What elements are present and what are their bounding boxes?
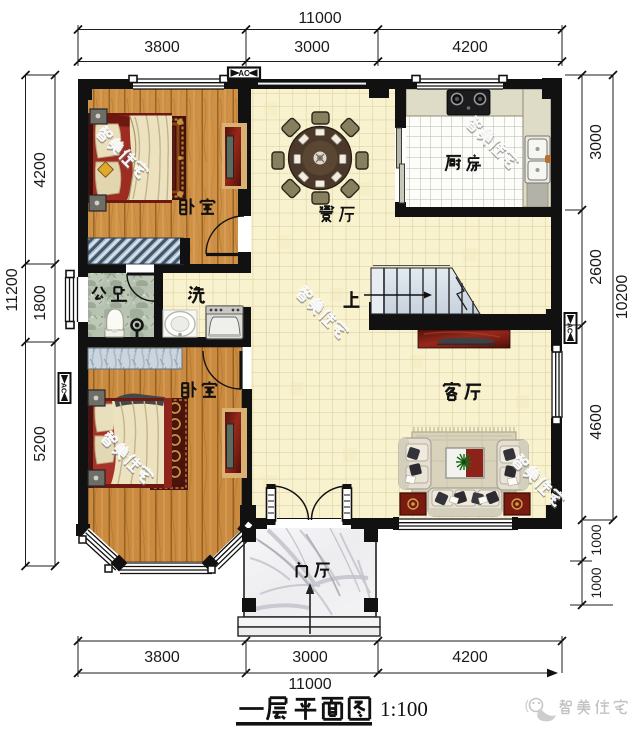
svg-text:AC: AC (60, 383, 69, 393)
svg-text:4600: 4600 (588, 404, 605, 440)
svg-text:1:100: 1:100 (380, 697, 428, 721)
svg-text:1800: 1800 (32, 285, 49, 321)
svg-text:3800: 3800 (144, 649, 180, 666)
svg-text:4200: 4200 (452, 649, 488, 666)
svg-text:AC: AC (238, 69, 250, 78)
svg-text:AC: AC (566, 323, 575, 333)
svg-text:2600: 2600 (588, 249, 605, 285)
svg-text:11000: 11000 (298, 10, 341, 27)
svg-text:3800: 3800 (144, 39, 180, 56)
svg-text:3000: 3000 (588, 124, 605, 160)
svg-text:11200: 11200 (4, 268, 21, 311)
svg-text:3000: 3000 (294, 39, 330, 56)
svg-text:4200: 4200 (32, 152, 49, 188)
svg-text:11000: 11000 (288, 676, 331, 693)
svg-text:3000: 3000 (292, 649, 328, 666)
svg-text:10200: 10200 (614, 275, 631, 320)
svg-text:1000: 1000 (588, 524, 604, 555)
svg-text:5200: 5200 (32, 426, 49, 462)
svg-text:1000: 1000 (588, 567, 604, 598)
svg-text:4200: 4200 (452, 39, 488, 56)
